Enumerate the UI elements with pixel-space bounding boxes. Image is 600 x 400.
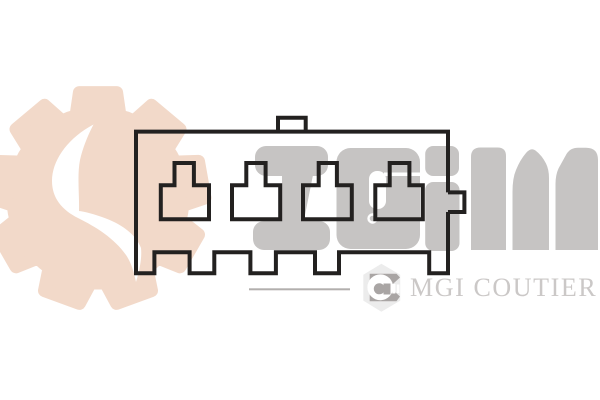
svg-text:MGI COUTIER: MGI COUTIER	[410, 273, 597, 302]
